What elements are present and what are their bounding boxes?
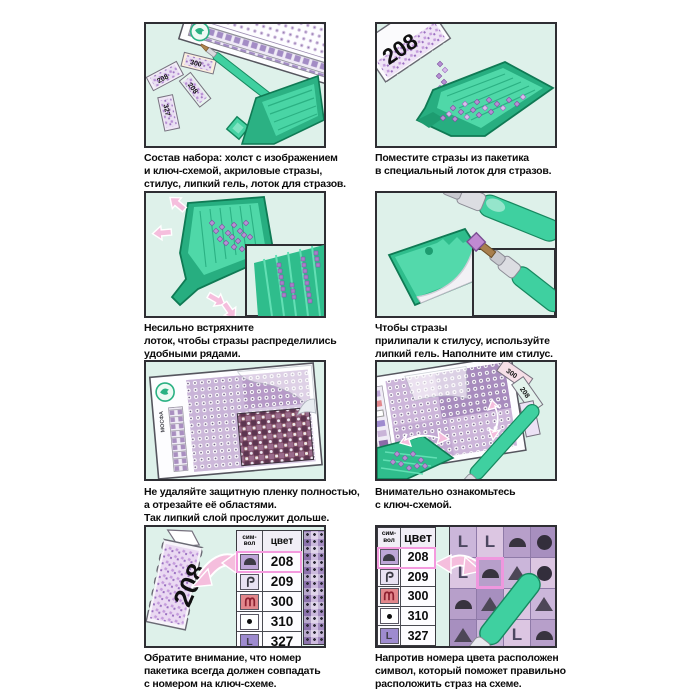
dot-icon [380,608,399,624]
step-panel-6: 300 208 327 [375,360,557,481]
canvas: МОСФА [150,363,322,479]
step-caption-7: Обратите внимание, что номер пакетика вс… [144,652,366,691]
color-code: 310 [263,612,301,631]
color-code: 208 [401,548,435,567]
hook-icon [380,569,399,585]
grid-cell [450,620,476,646]
key-row-208: 208 [378,548,435,568]
tray [417,62,553,136]
step-caption-4: Чтобы стразы прилипали к стилусу, исполь… [375,322,597,361]
step-caption-6: Внимательно ознакомьтесь с ключ-схемой. [375,486,597,512]
key-row-300: 300 [378,587,435,607]
step-panel-3 [144,191,326,318]
grid-cell [477,558,503,588]
grid-cell: L [450,558,476,588]
key-row-209: 209 [237,572,301,592]
grid-cell [531,589,557,619]
key-table: сим- вол цвет 208 209 300 31 [377,527,436,646]
stylus [417,193,555,244]
step-caption-2: Поместите стразы из пакетика в специальн… [375,152,597,178]
grid-cell: L [477,620,503,646]
color-code: 209 [263,572,301,591]
arches-icon [240,594,259,610]
color-code: 209 [401,568,435,587]
color-code: 310 [401,607,435,626]
letter-L-icon: L [380,628,399,644]
instruction-sheet: 208 300 327 208 Состав н [0,0,700,700]
key-table-header: сим- вол цвет [237,531,301,552]
step-caption-3: Несильно встряхните лоток, чтобы стразы … [144,322,366,361]
step-panel-4 [375,191,557,318]
step-panel-2: 208 [375,22,557,148]
grid-cell [531,620,557,646]
grid-cell [531,527,557,557]
step-caption-5: Не удаляйте защитную пленку полностью, а… [144,486,366,525]
grid-cell [531,558,557,588]
stylus-tip-inset [465,229,555,316]
scheme-grid: LLLLL [449,527,557,646]
step-panel-7: 208 сим- вол цвет 208 209 [144,525,326,648]
color-code: 300 [401,587,435,606]
grid-cell: L [477,527,503,557]
symbol-column-header: сим- вол [378,528,401,547]
grid-cell: L [504,620,530,646]
shake-illustration [146,193,324,316]
key-row-327: L 327 [378,626,435,645]
color-code: 300 [263,592,301,611]
letter-L-icon: L [240,634,259,649]
grid-cell: L [450,527,476,557]
grid-cell [504,589,530,619]
gel-illustration [377,193,555,316]
key-row-327: L 327 [237,632,301,648]
kit-illustration: 208 300 327 208 [146,24,324,146]
step-caption-1: Состав набора: холст с изображением и кл… [144,152,366,191]
film-illustration: МОСФА [146,362,324,479]
color-code: 327 [401,626,435,645]
step-caption-8: Напротив номера цвета расположен символ,… [375,652,597,691]
color-column-header: цвет [263,531,301,551]
pattern-strip [303,530,325,645]
grid-cell [504,527,530,557]
step-panel-5: МОСФА [144,360,326,481]
dot-icon [240,614,259,630]
dome-icon [380,549,399,565]
color-code: 327 [263,632,301,648]
grid-cell [450,589,476,619]
color-column-header: цвет [401,528,435,547]
step-panel-8: сим- вол цвет 208 209 300 31 [375,525,557,648]
strass-packets: 208 300 327 208 [146,52,216,131]
scheme-illustration: 300 208 327 [377,362,555,479]
dome-icon [240,554,259,570]
grid-cell [477,589,503,619]
key-row-310: 310 [378,607,435,627]
key-table-header: сим- вол цвет [378,528,435,548]
tray-closeup-inset [246,245,324,316]
key-row-310: 310 [237,612,301,632]
packet-and-arrow: 208 [146,527,236,646]
pour-illustration: 208 [377,24,555,146]
key-row-209: 209 [378,568,435,588]
key-row-208: 208 [237,552,301,572]
color-code: 208 [263,552,301,571]
symbol-column-header: сим- вол [237,531,263,551]
hook-icon [240,574,259,590]
grid-cell [504,558,530,588]
arches-icon [380,588,399,604]
step-panel-1: 208 300 327 208 [144,22,326,148]
key-table: сим- вол цвет 208 209 300 31 [236,530,302,648]
key-row-300: 300 [237,592,301,612]
